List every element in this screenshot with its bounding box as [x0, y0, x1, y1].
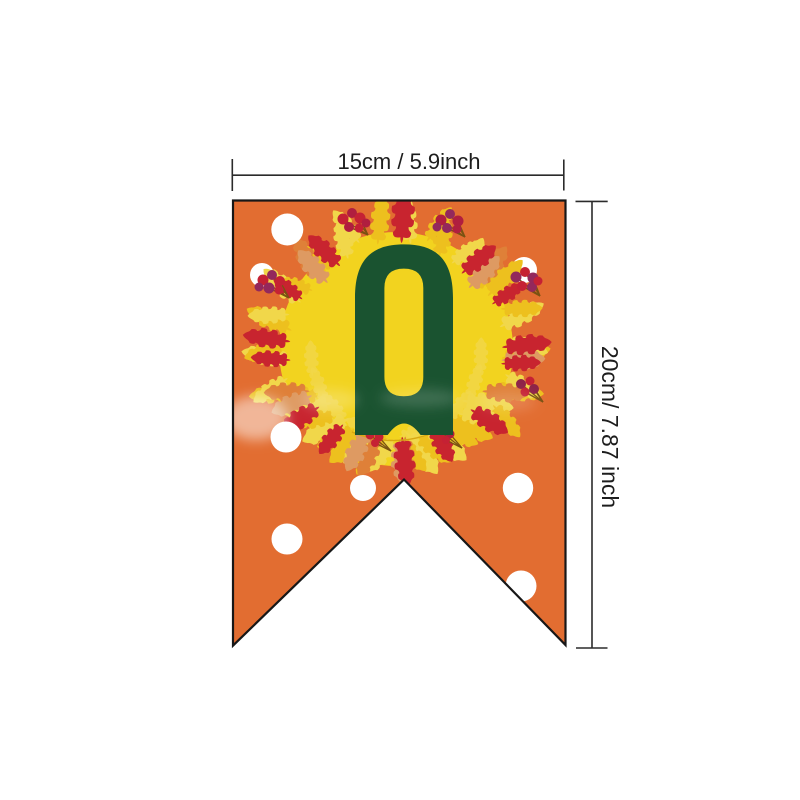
svg-text:20cm/ 7.87 inch: 20cm/ 7.87 inch: [597, 346, 623, 508]
svg-text:15cm / 5.9inch: 15cm / 5.9inch: [337, 149, 480, 174]
